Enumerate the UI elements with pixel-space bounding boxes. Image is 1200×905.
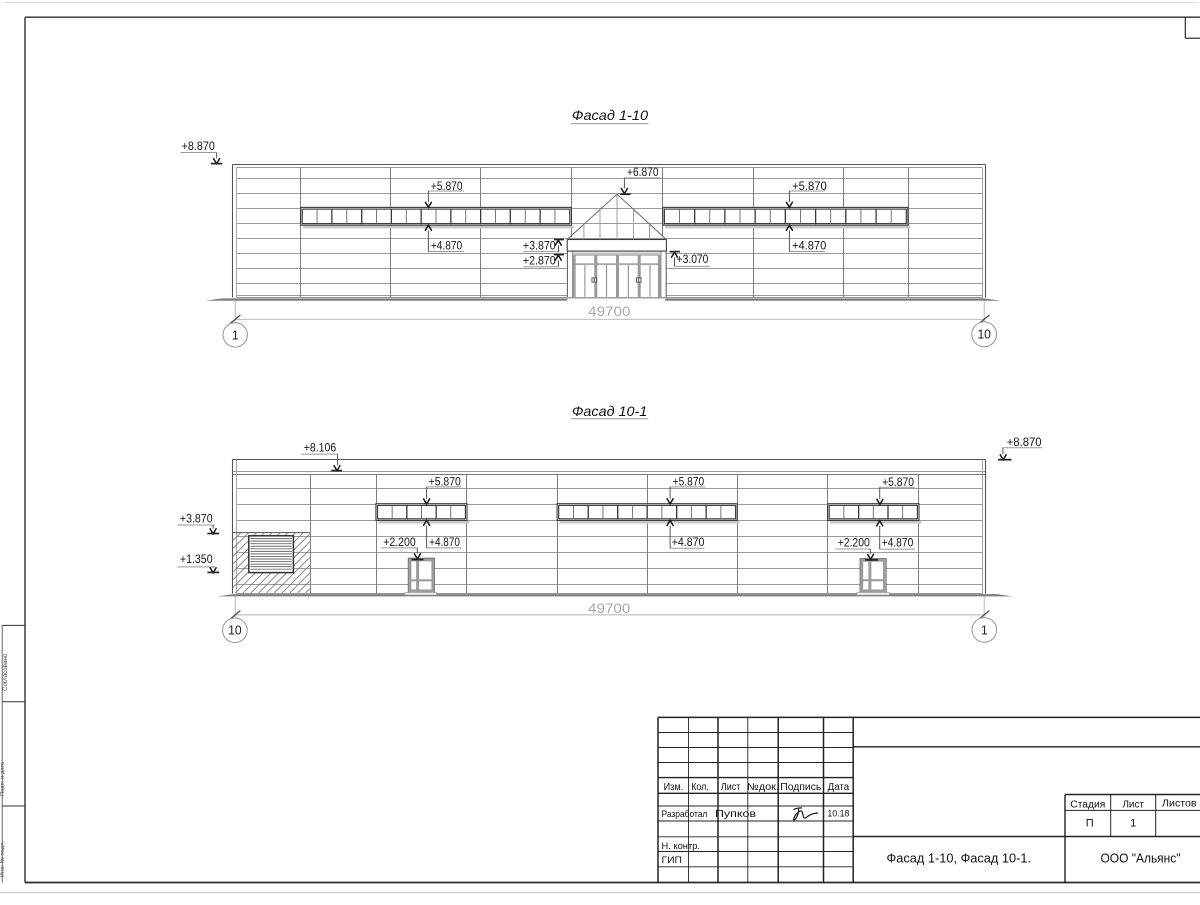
svg-text:10: 10 xyxy=(228,624,242,638)
svg-text:Лист: Лист xyxy=(1122,799,1144,810)
svg-text:+1.350: +1.350 xyxy=(180,552,213,566)
svg-text:+8.106: +8.106 xyxy=(304,440,337,454)
svg-text:+3.870: +3.870 xyxy=(523,239,556,253)
svg-text:Стадия: Стадия xyxy=(1070,799,1105,810)
svg-text:Инв. № подл.: Инв. № подл. xyxy=(0,841,6,877)
svg-text:№док.: №док. xyxy=(747,782,779,793)
svg-text:Кол.: Кол. xyxy=(691,782,709,793)
svg-text:+5.870: +5.870 xyxy=(882,475,914,489)
svg-text:+3.870: +3.870 xyxy=(180,512,213,526)
svg-text:49700: 49700 xyxy=(588,601,631,616)
svg-text:Фасад 1-10, Фасад 10-1.: Фасад 1-10, Фасад 10-1. xyxy=(887,850,1032,865)
svg-text:1: 1 xyxy=(981,623,988,637)
svg-text:Фасад 1-10: Фасад 1-10 xyxy=(572,108,649,123)
svg-text:ГИП: ГИП xyxy=(662,855,683,866)
svg-text:10.18: 10.18 xyxy=(827,809,849,820)
svg-text:+4.870: +4.870 xyxy=(429,535,460,549)
svg-text:Подпись: Подпись xyxy=(780,782,821,793)
svg-text:1: 1 xyxy=(1130,817,1136,829)
svg-text:+2.200: +2.200 xyxy=(383,535,416,549)
svg-text:Изм.: Изм. xyxy=(664,782,684,793)
svg-text:Согласовано: Согласовано xyxy=(2,653,9,691)
svg-text:10: 10 xyxy=(977,328,991,342)
svg-text:+4.870: +4.870 xyxy=(882,535,914,549)
svg-text:+6.870: +6.870 xyxy=(627,165,659,179)
svg-text:+2.200: +2.200 xyxy=(838,535,870,549)
svg-text:Н. контр.: Н. контр. xyxy=(662,841,701,852)
svg-text:+3.070: +3.070 xyxy=(677,252,709,266)
svg-text:+8.870: +8.870 xyxy=(182,139,216,153)
svg-text:+2.870: +2.870 xyxy=(523,253,556,267)
svg-text:Разработал: Разработал xyxy=(662,809,708,820)
svg-text:Пупков: Пупков xyxy=(715,808,756,820)
svg-text:+8.870: +8.870 xyxy=(1007,435,1042,449)
svg-text:Дата: Дата xyxy=(828,782,850,793)
svg-text:1: 1 xyxy=(232,328,239,342)
svg-text:ООО "Альянс": ООО "Альянс" xyxy=(1101,850,1181,865)
svg-text:Лист: Лист xyxy=(721,782,741,793)
svg-text:П: П xyxy=(1086,817,1094,829)
svg-text:Подп. и дата: Подп. и дата xyxy=(0,761,6,796)
svg-text:+4.870: +4.870 xyxy=(672,535,705,549)
svg-text:Листов: Листов xyxy=(1162,799,1197,810)
svg-text:+4.870: +4.870 xyxy=(792,239,827,253)
svg-text:49700: 49700 xyxy=(588,304,631,319)
svg-text:+4.870: +4.870 xyxy=(431,239,462,253)
svg-text:Фасад 10-1: Фасад 10-1 xyxy=(572,404,647,419)
